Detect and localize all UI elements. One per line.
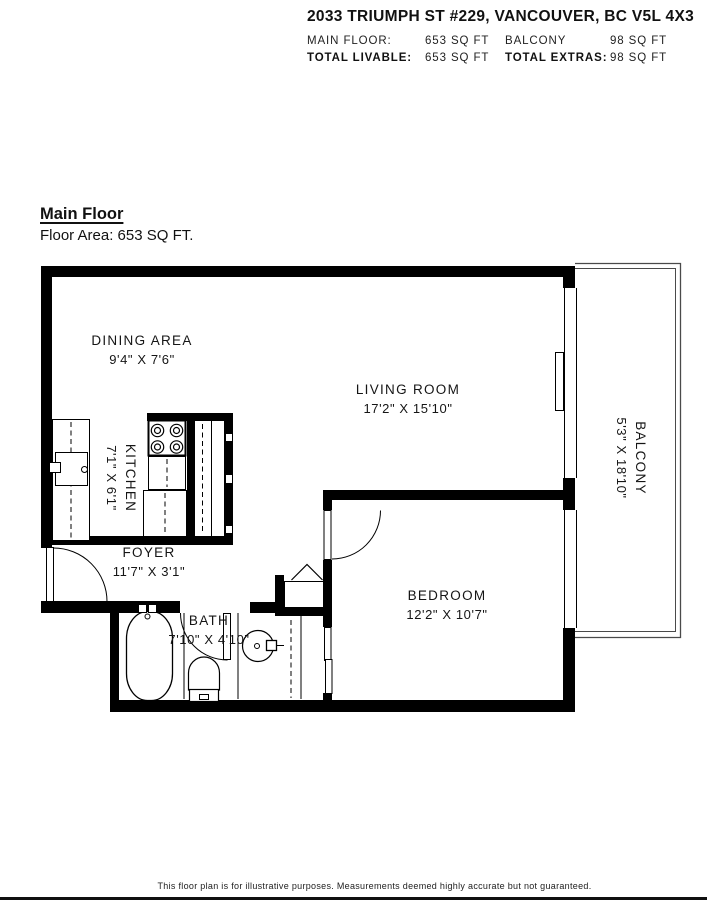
wall-segment [41,266,575,277]
room-label-living: LIVING ROOM 17'2" X 15'10" [356,380,460,418]
wall-segment [187,420,195,538]
entry-door [47,548,54,602]
bedroom-window [564,510,577,628]
kitchen-counter [144,491,187,537]
kitchen-counter [149,457,186,490]
wall-segment [110,700,575,712]
bedroom-door-swing [332,511,381,560]
floorplan-drawing: DINING AREA 9'4" X 7'6" KITCHEN 7'1" X 6… [0,0,707,900]
room-label-kitchen: KITCHEN 7'1" X 6'1" [102,444,140,512]
bedroom-door [324,511,331,560]
toilet [189,657,220,690]
wall-segment [275,575,284,609]
room-label-bath: BATH 7'10" X 4'10" [168,611,249,649]
entry-door-swing [54,548,108,602]
living-room-window [564,288,577,478]
kitchen-counter [53,420,90,541]
wall-segment [323,560,332,627]
bifold-door-icon [292,565,323,581]
bathtub [127,612,173,701]
closet-bypass-door [326,660,333,694]
disclaimer-text: This floor plan is for illustrative purp… [0,881,707,891]
room-label-bedroom: BEDROOM 12'2" X 10'7" [406,586,487,624]
kitchen-sink [56,453,88,486]
room-label-dining: DINING AREA 9'4" X 7'6" [91,331,192,369]
closet-bypass-door [325,628,332,661]
hall-closet [285,582,324,608]
stove [149,421,186,456]
wall-segment [323,490,563,500]
sink-tap [267,641,277,651]
floorplan-page: 2033 TRIUMPH ST #229, VANCOUVER, BC V5L … [0,0,707,900]
wall-segment [323,693,332,712]
wall-segment [563,628,575,712]
balcony-slider-door [556,353,564,411]
room-label-balcony: BALCONY 5'3" X 18'10" [612,417,650,498]
wall-segment [41,266,52,548]
wall-segment [323,490,332,510]
wall-segment [275,606,332,616]
wall-segment [110,602,119,712]
wall-segment [224,413,233,545]
wall-segment [563,277,575,288]
wall-segment [563,478,575,510]
room-label-foyer: FOYER 11'7" X 3'1" [113,543,185,581]
kitchen-fixtures [50,420,233,541]
